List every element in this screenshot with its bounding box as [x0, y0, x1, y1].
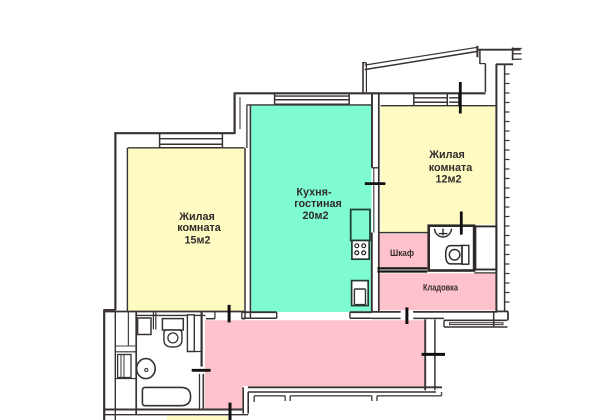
- svg-text:комната: комната: [177, 222, 222, 234]
- svg-text:комната: комната: [429, 162, 474, 174]
- svg-text:15м2: 15м2: [184, 235, 210, 247]
- svg-text:20м2: 20м2: [302, 210, 328, 222]
- svg-text:Жилая: Жилая: [178, 211, 215, 223]
- svg-text:Кладовка: Кладовка: [423, 283, 459, 293]
- svg-text:Жилая: Жилая: [428, 149, 465, 161]
- svg-text:Шкаф: Шкаф: [390, 248, 414, 258]
- svg-text:12м2: 12м2: [435, 174, 461, 186]
- svg-text:Кухня-: Кухня-: [296, 186, 332, 198]
- svg-text:гостиная: гостиная: [294, 198, 342, 210]
